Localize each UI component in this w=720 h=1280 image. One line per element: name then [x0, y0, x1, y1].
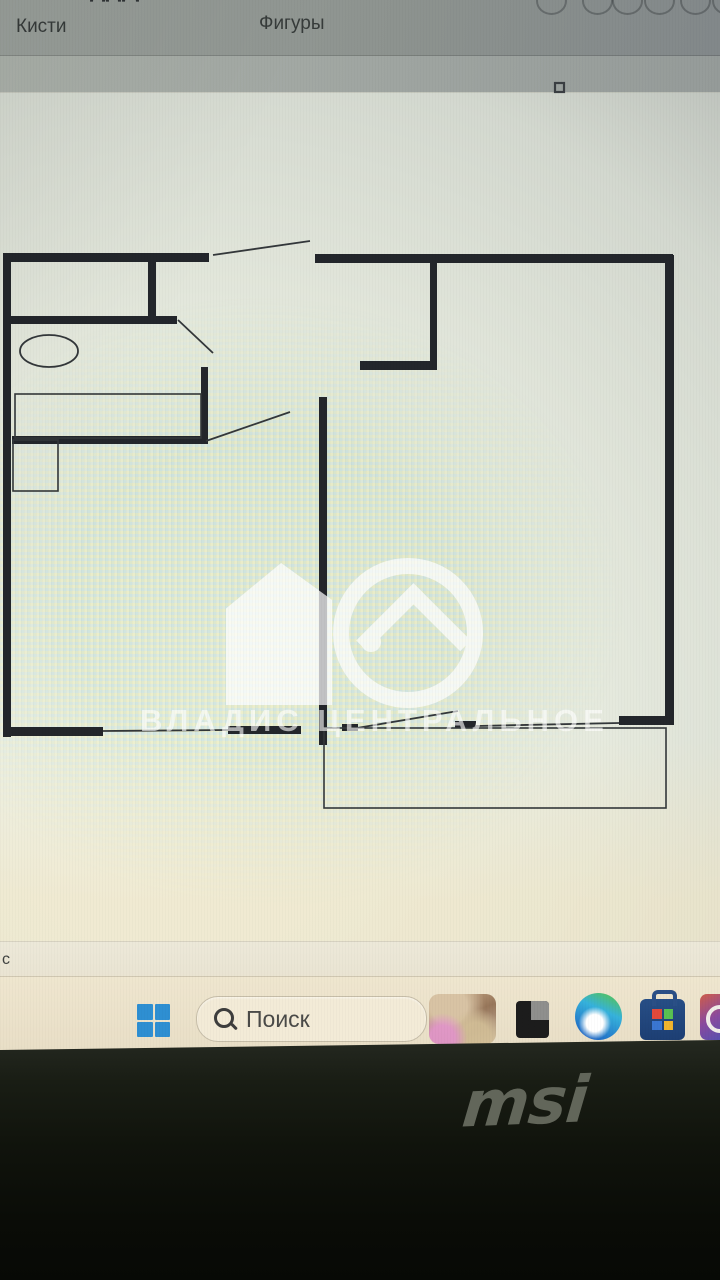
laptop-bezel: msi: [0, 1038, 720, 1280]
dark-app-corner: [531, 1001, 549, 1020]
paint-statusbar: с: [0, 941, 720, 977]
photo-light-overlay: [0, 93, 720, 942]
workspace-background: [0, 56, 720, 92]
oval-shape-icon[interactable]: [536, 0, 567, 15]
brush-icon[interactable]: [118, 0, 142, 14]
windows-logo-icon: [137, 1004, 153, 1020]
brushes-group-label: Кисти: [16, 16, 67, 38]
white-ring-icon: [706, 1005, 720, 1033]
laptop-photo: Кисти Фигуры ВЛАДИС ЦЕНТРАЛЬНОЕ с: [0, 0, 720, 1280]
paint-ribbon: Кисти Фигуры: [0, 0, 720, 56]
paint-canvas[interactable]: [0, 92, 720, 942]
start-button[interactable]: [137, 1004, 170, 1037]
oval-shape-icon[interactable]: [712, 0, 720, 15]
windows-grid-icon: [652, 1009, 673, 1030]
edge-browser-icon[interactable]: [575, 993, 622, 1040]
clipped-app-icon[interactable]: [700, 994, 720, 1040]
search-box[interactable]: Поиск: [196, 996, 427, 1042]
oval-shape-icon[interactable]: [680, 0, 711, 15]
msi-logo: msi: [459, 1063, 591, 1142]
statusbar-text: с: [2, 951, 10, 969]
taskbar: Поиск: [0, 976, 720, 1052]
store-icon[interactable]: [640, 999, 685, 1040]
bag-handle-icon: [652, 990, 677, 1006]
dark-app-icon[interactable]: [516, 1001, 549, 1038]
shapes-group-label: Фигуры: [259, 13, 325, 35]
search-icon: [214, 1008, 234, 1028]
screen-moire-texture: [0, 93, 720, 942]
search-placeholder: Поиск: [246, 1006, 310, 1033]
widgets-button[interactable]: [429, 994, 496, 1044]
oval-shape-icon[interactable]: [582, 0, 613, 15]
oval-shape-icon[interactable]: [612, 0, 643, 15]
screen: Кисти Фигуры ВЛАДИС ЦЕНТРАЛЬНОЕ с: [0, 0, 720, 1052]
oval-shape-icon[interactable]: [644, 0, 675, 15]
